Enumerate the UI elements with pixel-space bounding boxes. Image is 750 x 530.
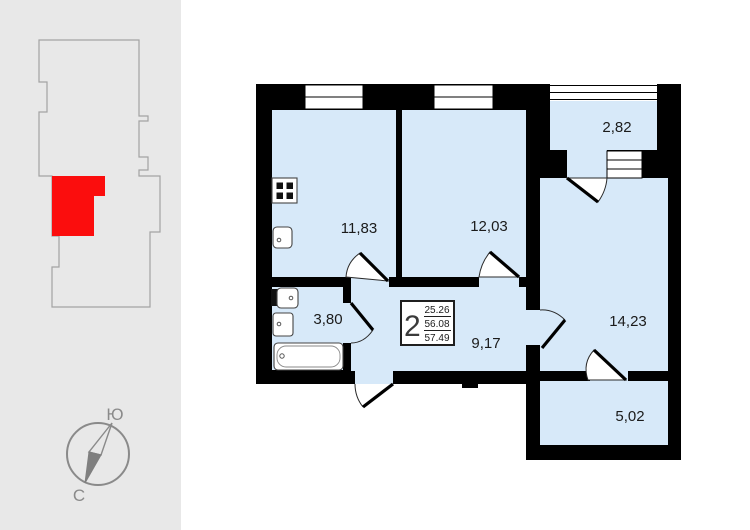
floor-area-value: 56.08 <box>424 319 449 330</box>
balcony-area-label: 2,82 <box>602 119 631 136</box>
room-living <box>540 178 668 371</box>
total-area-value: 57.49 <box>424 333 449 344</box>
kitchen-sink-icon <box>273 227 292 248</box>
washbasin-icon <box>271 288 298 308</box>
stove-icon <box>272 178 297 203</box>
room-bedroom <box>402 110 526 277</box>
hallway-area-label: 9,17 <box>471 335 500 352</box>
info-box[interactable]: 2 25.26 56.08 57.49 <box>401 301 454 345</box>
balcony-window-icon <box>607 151 642 178</box>
room-count-label: 2 <box>404 310 421 343</box>
compass-south-label: Ю <box>106 405 123 424</box>
room-loggia <box>540 381 668 445</box>
compass-north-label: С <box>73 486 85 505</box>
living-area-value: 25.26 <box>424 305 449 316</box>
bathroom-area-label: 3,80 <box>313 311 342 328</box>
window-icon <box>434 85 493 109</box>
bedroom-area-label: 12,03 <box>470 218 508 235</box>
bathtub-icon <box>274 343 343 370</box>
door-entrance-icon <box>355 384 393 407</box>
loggia-area-label: 5,02 <box>615 408 644 425</box>
floor-plan: 11,83 12,03 2,82 14,23 9,17 5,02 3,80 2 … <box>256 84 681 460</box>
window-icon <box>305 85 363 109</box>
apartment-plan-view: Ю С <box>0 0 750 530</box>
kitchen-area-label: 11,83 <box>341 220 377 237</box>
balcony-railing-icon <box>550 84 657 101</box>
toilet-sink-icon <box>273 313 293 336</box>
living-area-label: 14,23 <box>609 313 647 330</box>
